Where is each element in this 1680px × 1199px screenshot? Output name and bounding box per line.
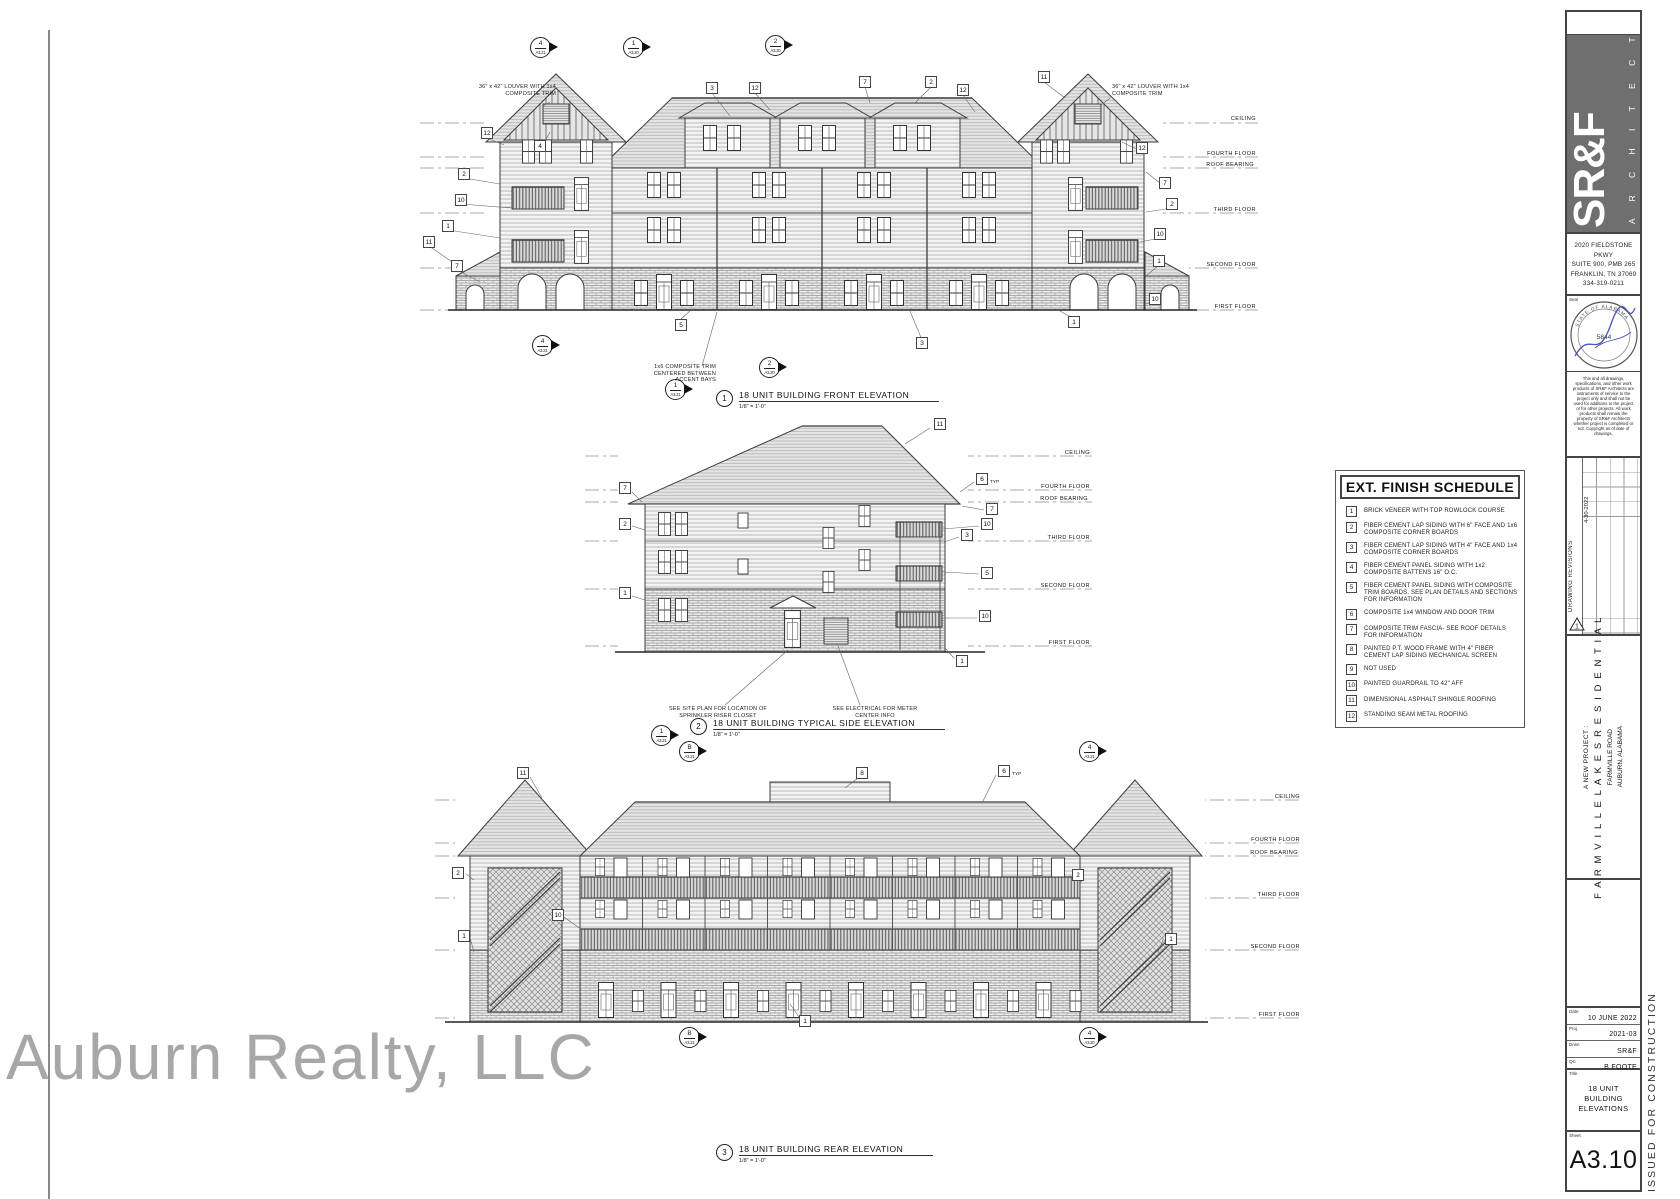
sheet-title-box: Title 18 UNIT BUILDING ELEVATIONS bbox=[1567, 1070, 1640, 1132]
keynote-bubble: 6TYP bbox=[998, 765, 1010, 777]
firm-address: 2020 FIELDSTONE PKWY SUITE 900, PMB 265 … bbox=[1567, 234, 1640, 296]
info-row-date: Date 10 JUNE 2022 bbox=[1567, 1008, 1640, 1025]
info-label: Drwn bbox=[1569, 1042, 1580, 1047]
level-label: CEILING bbox=[1166, 116, 1256, 122]
annotation-note: 36" x 42" LOUVER WITH 1x4 COMPOSITE TRIM bbox=[1112, 84, 1200, 97]
title-block: SR&F A R C H I T E C T S 2020 FIELDSTONE… bbox=[1565, 10, 1642, 1192]
level-label: SECOND FLOOR bbox=[1210, 944, 1300, 950]
level-label: FIRST FLOOR bbox=[1210, 1012, 1300, 1018]
marker-number: 1 bbox=[628, 40, 639, 49]
marker-number: 1 bbox=[656, 728, 667, 737]
keynote-bubble: 8 bbox=[856, 767, 868, 779]
revisions-grid bbox=[1582, 458, 1640, 634]
schedule-item: 6COMPOSITE 1x4 WINDOW AND DOOR TRIM bbox=[1346, 609, 1519, 620]
level-label: ROOF BEARING bbox=[1208, 850, 1298, 856]
caption-number: 3 bbox=[716, 1144, 733, 1161]
info-value: SR&F bbox=[1617, 1048, 1637, 1055]
keynote-bubble: 3 bbox=[916, 337, 928, 349]
caption-scale: 1/8" = 1'-0" bbox=[739, 1158, 933, 1164]
marker-circle: 2A3.20 bbox=[765, 35, 786, 56]
marker-number: 2 bbox=[770, 38, 781, 47]
level-label: FOURTH FLOOR bbox=[1210, 837, 1300, 843]
project-address: FARMVILLE ROAD bbox=[1607, 729, 1614, 785]
marker-sheet: A3.20 bbox=[771, 47, 781, 54]
section-marker: 4A3.21 bbox=[532, 335, 554, 357]
caption-front-elevation: 1 18 UNIT BUILDING FRONT ELEVATION 1/8" … bbox=[716, 390, 939, 410]
keynote-bubble: 2 bbox=[925, 76, 937, 88]
address-line: SUITE 900, PMB 265 bbox=[1567, 260, 1640, 270]
marker-sheet: A3.21 bbox=[1085, 753, 1095, 760]
schedule-item: 8PAINTED P.T. WOOD FRAME WITH 4" FIBER C… bbox=[1346, 644, 1519, 660]
caption-rear-elevation: 3 18 UNIT BUILDING REAR ELEVATION 1/8" =… bbox=[716, 1144, 933, 1164]
level-label: CEILING bbox=[1000, 450, 1090, 456]
marker-sheet: A3.21 bbox=[657, 737, 667, 744]
level-label: FOURTH FLOOR bbox=[1166, 151, 1256, 157]
issued-for-construction-stamp: ISSUED FOR CONSTRUCTION bbox=[1646, 986, 1661, 1192]
keynote-bubble: 11 bbox=[423, 236, 435, 248]
info-row-proj: Proj 2021-03 bbox=[1567, 1025, 1640, 1042]
keynote-bubble: 3 bbox=[961, 529, 973, 541]
schedule-item-number: 1 bbox=[1346, 506, 1357, 517]
marker-circle: 4A3.21 bbox=[532, 335, 553, 356]
schedule-item-number: 2 bbox=[1346, 522, 1357, 533]
keynote-bubble: 1 bbox=[458, 930, 470, 942]
marker-sheet: A3.20 bbox=[1085, 1039, 1095, 1046]
level-label: SECOND FLOOR bbox=[1166, 262, 1256, 268]
schedule-item-text: FIBER CEMENT PANEL SIDING WITH 1x2 COMPO… bbox=[1364, 562, 1519, 578]
section-marker: 4A3.20 bbox=[1079, 1027, 1101, 1049]
schedule-item-text: PAINTED P.T. WOOD FRAME WITH 4" FIBER CE… bbox=[1364, 644, 1519, 660]
marker-sheet: A3.20 bbox=[629, 49, 639, 56]
schedule-item-text: COMPOSITE 1x4 WINDOW AND DOOR TRIM bbox=[1364, 609, 1494, 618]
info-rows: Date 10 JUNE 2022 Proj 2021-03 Drwn SR&F… bbox=[1567, 1008, 1640, 1070]
keynote-bubble: 1 bbox=[799, 1015, 811, 1027]
caption-title: 18 UNIT BUILDING REAR ELEVATION bbox=[739, 1144, 933, 1156]
schedule-items: 1BRICK VENEER WITH TOP ROWLOCK COURSE2FI… bbox=[1336, 506, 1524, 722]
drawing-sheet: 1 18 UNIT BUILDING FRONT ELEVATION 1/8" … bbox=[0, 0, 1680, 1199]
sheet-number: A3.10 bbox=[1567, 1146, 1640, 1175]
address-line: 334-319-0211 bbox=[1567, 279, 1640, 289]
schedule-item-text: FIBER CEMENT PANEL SIDING WITH COMPOSITE… bbox=[1364, 582, 1519, 605]
marker-sheet: A3.20 bbox=[765, 369, 775, 376]
level-label: CEILING bbox=[1210, 794, 1300, 800]
level-label: THIRD FLOOR bbox=[1000, 535, 1090, 541]
info-value: 2021-03 bbox=[1609, 1031, 1637, 1038]
marker-sheet: A3.21 bbox=[685, 1039, 695, 1046]
keynote-bubble: 7 bbox=[859, 76, 871, 88]
level-label: ROOF BEARING bbox=[1164, 162, 1254, 168]
level-label: THIRD FLOOR bbox=[1210, 892, 1300, 898]
marker-circle: 1A3.21 bbox=[651, 725, 672, 746]
keynote-bubble: 4 bbox=[534, 140, 546, 152]
typ-label: TYP bbox=[990, 477, 999, 488]
typ-label: TYP bbox=[1012, 769, 1021, 780]
marker-sheet: A3.21 bbox=[685, 753, 695, 760]
caption-number: 2 bbox=[690, 718, 707, 735]
keynote-bubble: 11 bbox=[934, 418, 946, 430]
project-block: A NEW PROJECT : F A R M V I L L E L A K … bbox=[1567, 636, 1640, 880]
schedule-item-number: 12 bbox=[1346, 711, 1357, 722]
info-value: 10 JUNE 2022 bbox=[1588, 1015, 1637, 1022]
keynote-bubble: 1 bbox=[1165, 933, 1177, 945]
schedule-item: 11DIMENSIONAL ASPHALT SHINGLE ROOFING bbox=[1346, 695, 1519, 706]
schedule-item-number: 3 bbox=[1346, 542, 1357, 553]
keynote-bubble: 2 bbox=[1072, 869, 1084, 881]
schedule-item: 5FIBER CEMENT PANEL SIDING WITH COMPOSIT… bbox=[1346, 582, 1519, 605]
schedule-item-text: COMPOSITE TRIM FASCIA- SEE ROOF DETAILS … bbox=[1364, 624, 1519, 640]
section-marker: BA3.21 bbox=[679, 1027, 701, 1049]
schedule-item-text: STANDING SEAM METAL ROOFING bbox=[1364, 711, 1468, 720]
marker-number: 4 bbox=[535, 40, 546, 49]
schedule-item: 9NOT USED bbox=[1346, 664, 1519, 675]
schedule-item: 7COMPOSITE TRIM FASCIA- SEE ROOF DETAILS… bbox=[1346, 624, 1519, 640]
keynote-bubble: 12 bbox=[481, 127, 493, 139]
marker-number: 4 bbox=[1084, 1030, 1095, 1039]
architect-seal-box: Seal STATE OF ALABAMA 5844 bbox=[1567, 296, 1640, 372]
schedule-item: 3FIBER CEMENT LAP SIDING WITH 4" FACE AN… bbox=[1346, 542, 1519, 558]
keynote-bubble: 7 bbox=[451, 260, 463, 272]
firm-logo: SR&F bbox=[1568, 34, 1612, 228]
keynote-bubble: 2 bbox=[619, 518, 631, 530]
keynote-bubble: 1 bbox=[1068, 316, 1080, 328]
keynote-bubble: 5 bbox=[675, 319, 687, 331]
keynote-bubble: 7 bbox=[619, 482, 631, 494]
level-label: FIRST FLOOR bbox=[1000, 640, 1090, 646]
keynote-bubble: 7 bbox=[986, 503, 998, 515]
sheet-label: Sheet bbox=[1569, 1133, 1581, 1138]
marker-sheet: A3.21 bbox=[538, 347, 548, 354]
section-marker: BA3.21 bbox=[679, 741, 701, 763]
level-label: ROOF BEARING bbox=[998, 496, 1088, 502]
title-label: Title bbox=[1569, 1071, 1577, 1076]
caption-title: 18 UNIT BUILDING TYPICAL SIDE ELEVATION bbox=[713, 718, 945, 730]
schedule-item-number: 9 bbox=[1346, 664, 1357, 675]
keynote-bubble: 10 bbox=[1149, 293, 1161, 305]
marker-circle: BA3.21 bbox=[679, 741, 700, 762]
address-line: 2020 FIELDSTONE PKWY bbox=[1567, 241, 1640, 260]
schedule-item: 4FIBER CEMENT PANEL SIDING WITH 1x2 COMP… bbox=[1346, 562, 1519, 578]
watermark: Auburn Realty, LLC bbox=[6, 1020, 596, 1094]
schedule-item: 2FIBER CEMENT LAP SIDING WITH 6" FACE AN… bbox=[1346, 522, 1519, 538]
ext-finish-schedule: EXT. FINISH SCHEDULE 1BRICK VENEER WITH … bbox=[1335, 470, 1525, 728]
section-marker: 2A3.20 bbox=[759, 357, 781, 379]
caption-scale: 1/8" = 1'-0" bbox=[739, 404, 939, 410]
copyright-disclaimer: This and all drawings, specifications, a… bbox=[1567, 372, 1640, 458]
info-row-drawn: Drwn SR&F bbox=[1567, 1041, 1640, 1058]
level-label: FOURTH FLOOR bbox=[1000, 484, 1090, 490]
keynote-bubble: 2 bbox=[458, 168, 470, 180]
firm-logo-subtitle: A R C H I T E C T S bbox=[1627, 36, 1637, 224]
keynote-bubble: 6TYP bbox=[976, 473, 988, 485]
schedule-item-number: 10 bbox=[1346, 680, 1357, 691]
info-label: QC bbox=[1569, 1059, 1576, 1064]
level-label: SECOND FLOOR bbox=[1000, 583, 1090, 589]
keynote-bubble: 1 bbox=[1153, 255, 1165, 267]
schedule-item-number: 11 bbox=[1346, 695, 1357, 706]
sheet-number-box: Sheet A3.10 bbox=[1567, 1132, 1640, 1190]
section-marker: 4A3.21 bbox=[530, 37, 552, 59]
marker-circle: 2A3.20 bbox=[759, 357, 780, 378]
project-name: F A R M V I L L E L A K E S R E S I D E … bbox=[1593, 616, 1604, 899]
keynote-bubble: 5 bbox=[981, 567, 993, 579]
level-label: THIRD FLOOR bbox=[1166, 207, 1256, 213]
schedule-item-number: 5 bbox=[1346, 582, 1357, 593]
schedule-item-number: 8 bbox=[1346, 644, 1357, 655]
schedule-title: EXT. FINISH SCHEDULE bbox=[1340, 475, 1520, 499]
keynote-bubble: 12 bbox=[1136, 142, 1148, 154]
firm-logo-block: SR&F A R C H I T E C T S bbox=[1567, 34, 1640, 234]
project-city: AUBURN, ALABAMA bbox=[1617, 726, 1624, 787]
keynote-bubble: 10 bbox=[979, 610, 991, 622]
schedule-item-text: PAINTED GUARDRAIL TO 42" AFF bbox=[1364, 680, 1463, 689]
marker-number: 4 bbox=[537, 338, 548, 347]
keynote-bubble: 1 bbox=[619, 587, 631, 599]
schedule-item: 1BRICK VENEER WITH TOP ROWLOCK COURSE bbox=[1346, 506, 1519, 517]
keynote-bubble: 1 bbox=[442, 220, 454, 232]
schedule-item-text: FIBER CEMENT LAP SIDING WITH 4" FACE AND… bbox=[1364, 542, 1519, 558]
annotation-note: 36" x 42" LOUVER WITH 1x4 COMPOSITE TRIM bbox=[468, 84, 556, 97]
marker-circle: 1A3.20 bbox=[623, 37, 644, 58]
schedule-item-text: BRICK VENEER WITH TOP ROWLOCK COURSE bbox=[1364, 506, 1505, 515]
keynote-bubble: 12 bbox=[749, 82, 761, 94]
annotation-note: SEE SITE PLAN FOR LOCATION OF SPRINKLER … bbox=[668, 706, 768, 719]
keynote-bubble: 1 bbox=[956, 655, 968, 667]
info-label: Date bbox=[1569, 1009, 1579, 1014]
caption-side-elevation: 2 18 UNIT BUILDING TYPICAL SIDE ELEVATIO… bbox=[690, 718, 945, 738]
section-marker: 1A3.20 bbox=[623, 37, 645, 59]
marker-circle: 4A3.20 bbox=[1079, 1027, 1100, 1048]
drawing-revisions-block: DRAWING REVISIONS 4-30-2022 1 bbox=[1567, 458, 1640, 636]
keynote-bubble: 7 bbox=[1159, 177, 1171, 189]
keynote-bubble: 10 bbox=[455, 194, 467, 206]
caption-title: 18 UNIT BUILDING FRONT ELEVATION bbox=[739, 390, 939, 402]
keynote-bubble: 12 bbox=[957, 84, 969, 96]
schedule-item-text: NOT USED bbox=[1364, 664, 1396, 673]
info-label: Proj bbox=[1569, 1026, 1577, 1031]
address-line: FRANKLIN, TN 37069 bbox=[1567, 270, 1640, 280]
schedule-item-text: FIBER CEMENT LAP SIDING WITH 6" FACE AND… bbox=[1364, 522, 1519, 538]
keynote-bubble: 11 bbox=[1038, 71, 1050, 83]
marker-sheet: A3.21 bbox=[536, 49, 546, 56]
revision-delta-number: 1 bbox=[1575, 624, 1579, 631]
revision-delta-icon: 1 bbox=[1569, 617, 1585, 631]
marker-number: B bbox=[684, 1030, 695, 1039]
schedule-item-number: 4 bbox=[1346, 562, 1357, 573]
schedule-item-number: 6 bbox=[1346, 609, 1357, 620]
level-label: FIRST FLOOR bbox=[1166, 304, 1256, 310]
revision-date: 4-30-2022 bbox=[1584, 463, 1590, 523]
schedule-item: 12STANDING SEAM METAL ROOFING bbox=[1346, 711, 1519, 722]
keynote-bubble: 10 bbox=[552, 909, 564, 921]
section-marker: 1A3.21 bbox=[651, 725, 673, 747]
marker-circle: 4A3.21 bbox=[1079, 741, 1100, 762]
marker-number: 2 bbox=[764, 360, 775, 369]
marker-number: 4 bbox=[1084, 744, 1095, 753]
caption-scale: 1/8" = 1'-0" bbox=[713, 732, 945, 738]
schedule-item-text: DIMENSIONAL ASPHALT SHINGLE ROOFING bbox=[1364, 695, 1496, 704]
sheet-title: 18 UNIT BUILDING ELEVATIONS bbox=[1567, 1084, 1640, 1114]
annotation-note: 1x6 COMPOSITE TRIM CENTERED BETWEEN ACCE… bbox=[636, 364, 716, 384]
section-marker: 2A3.20 bbox=[765, 35, 787, 57]
schedule-item: 10PAINTED GUARDRAIL TO 42" AFF bbox=[1346, 680, 1519, 691]
keynote-bubble: 11 bbox=[517, 767, 529, 779]
marker-circle: 4A3.21 bbox=[530, 37, 551, 58]
keynote-bubble: 10 bbox=[1154, 228, 1166, 240]
architect-seal: STATE OF ALABAMA 5844 bbox=[1567, 298, 1641, 372]
project-prefix: A NEW PROJECT : bbox=[1583, 725, 1590, 789]
schedule-item-number: 7 bbox=[1346, 624, 1357, 635]
annotation-note: SEE ELECTRICAL FOR METER CENTER INFO bbox=[830, 706, 920, 719]
keynote-bubble: 10 bbox=[981, 518, 993, 530]
marker-circle: BA3.21 bbox=[679, 1027, 700, 1048]
caption-number: 1 bbox=[716, 390, 733, 407]
section-marker: 4A3.21 bbox=[1079, 741, 1101, 763]
revisions-label: DRAWING REVISIONS bbox=[1568, 462, 1574, 612]
keynote-bubble: 2 bbox=[452, 867, 464, 879]
marker-number: B bbox=[684, 744, 695, 753]
keynote-bubble: 3 bbox=[706, 82, 718, 94]
marker-sheet: A3.21 bbox=[671, 391, 681, 398]
notes-blank-box bbox=[1567, 880, 1640, 1008]
